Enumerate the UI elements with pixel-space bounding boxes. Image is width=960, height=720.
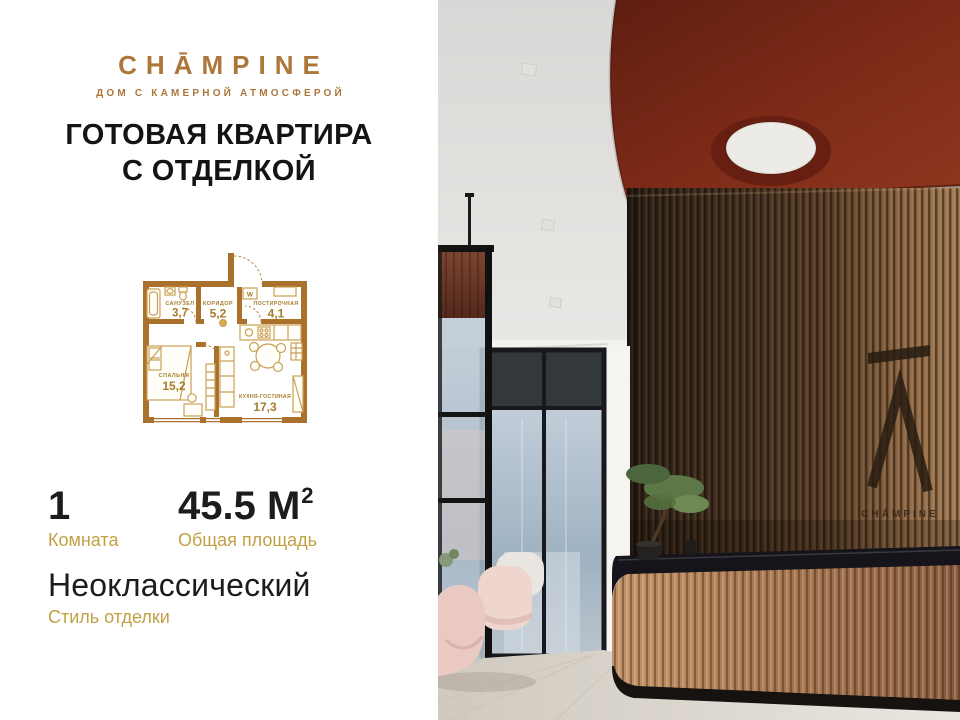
washer-label: W [247,292,254,299]
room-area-kitchen: 17,3 [253,400,277,414]
stat-rooms: 1 Комната [48,486,118,551]
stat-style-value: Неоклассический [48,568,311,603]
brand-logo: CHĀMPINE ДОМ С КАМЕРНОЙ АТМОСФЕРОЙ [0,50,438,99]
interior-photo: CHĀMPINE [438,0,960,720]
interior-photo-scene: CHĀMPINE [438,0,960,720]
stat-area-number: 45.5 М [178,484,300,528]
stat-area-sup: 2 [301,483,313,508]
slide-canvas: CHĀMPINE ДОМ С КАМЕРНОЙ АТМОСФЕРОЙ ГОТОВ… [0,0,960,720]
stat-style: Неоклассический Стиль отделки [48,568,311,628]
room-area-corridor: 5,2 [210,307,227,321]
floor-plan: САНУЗЕЛ 3,7 КОРИДОР 5,2 ПОСТИРОЧНАЯ 4,1 … [128,248,332,438]
page-title-line2: С ОТДЕЛКОЙ [122,155,316,187]
stat-rooms-label: Комната [48,530,118,551]
wood-slat-wall [627,188,960,603]
room-area-laundry: 4,1 [268,307,285,321]
room-area-bedroom: 15,2 [162,379,186,393]
stat-rooms-value: 1 [48,486,118,526]
room-area-bathroom: 3,7 [172,308,188,320]
page-title-line1: ГОТОВАЯ КВАРТИРА [65,119,372,151]
brand-tagline: ДОМ С КАМЕРНОЙ АТМОСФЕРОЙ [0,88,438,99]
stat-area: 45.5 М2 Общая площадь [178,486,317,551]
stat-area-value: 45.5 М2 [178,486,317,526]
floor-plan-windows [154,417,282,423]
stat-area-label: Общая площадь [178,530,317,551]
card-reader [685,540,697,556]
page-title: ГОТОВАЯ КВАРТИРАС ОТДЕЛКОЙ [0,118,438,190]
room-name-bathroom: САНУЗЕЛ [165,301,194,307]
wall-logo-text: CHĀMPINE [861,508,938,520]
info-panel: CHĀMPINE ДОМ С КАМЕРНОЙ АТМОСФЕРОЙ ГОТОВ… [0,0,438,720]
hanging-rod [468,195,471,247]
stat-style-label: Стиль отделки [48,607,311,628]
reception-desk [612,546,960,712]
brand-logo-text: CHĀMPINE [0,50,438,81]
